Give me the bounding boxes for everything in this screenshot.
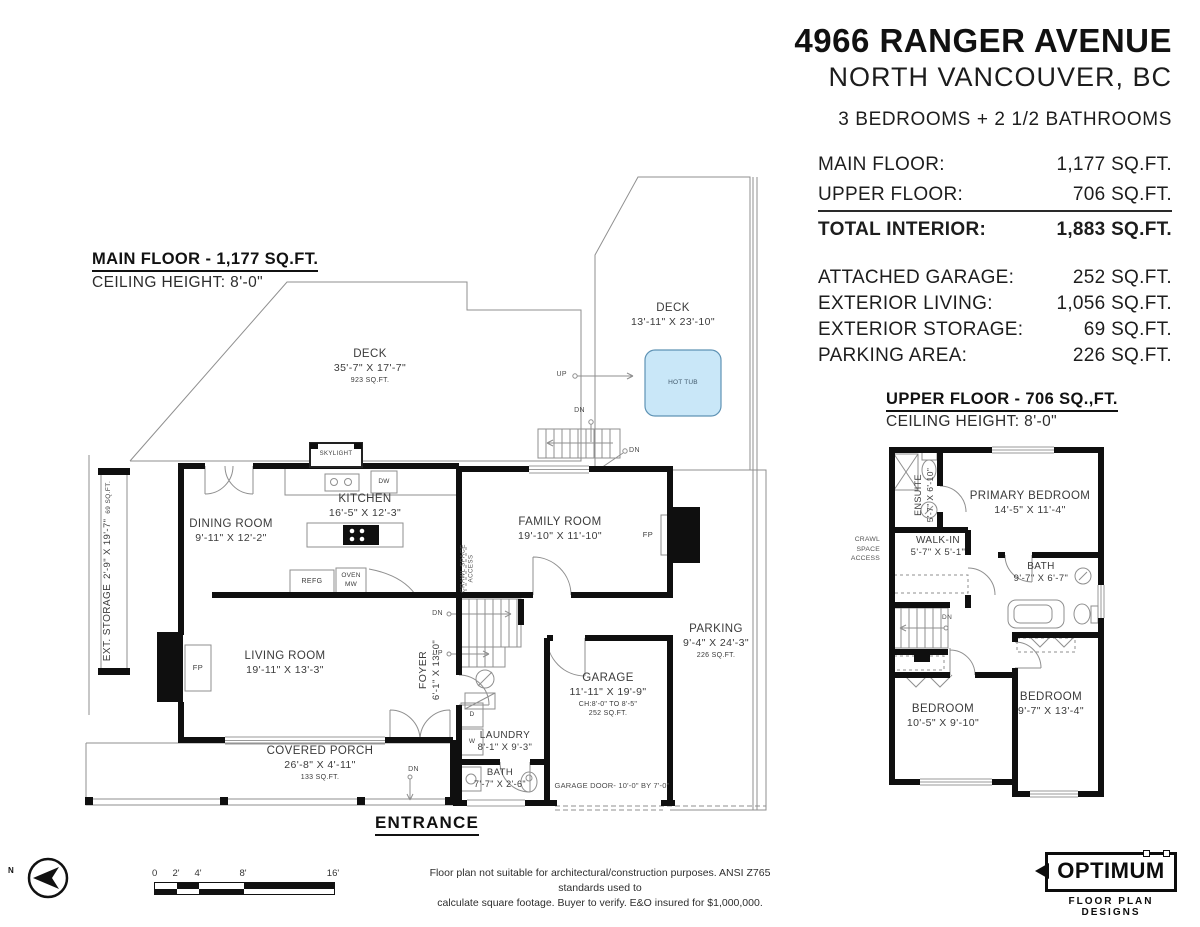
deck-dn-label-1: DN: [563, 406, 585, 415]
stat-exterior-storage: EXTERIOR STORAGE: 69 SQ.FT.: [818, 315, 1172, 341]
scale-tick-0: 0: [152, 868, 157, 879]
stat-value: 1,177 SQ.FT.: [1056, 154, 1172, 176]
stat-parking-area: PARKING AREA: 226 SQ.FT.: [818, 341, 1172, 367]
washer-label: W: [462, 738, 482, 746]
family-room-label: FAMILY ROOM 19'-10" X 11'-10": [490, 515, 630, 544]
logo-square-icon: [1163, 850, 1170, 857]
scale-bar: 0 2' 4' 8' 16': [152, 868, 337, 898]
fireplace-label-living: FP: [185, 663, 211, 673]
dishwasher-label: DW: [371, 478, 397, 486]
stat-attached-garage: ATTACHED GARAGE: 252 SQ.FT.: [818, 263, 1172, 289]
stat-value: 1,883 SQ.FT.: [1056, 219, 1172, 241]
porch-dn-label: DN: [395, 765, 419, 774]
dryer-label: D: [462, 711, 482, 719]
upper-bath-label: BATH 9'-7" X 6'-7": [996, 560, 1086, 585]
logo-arrow-icon: [1035, 863, 1049, 879]
microwave-label: MW: [336, 581, 366, 589]
fireplace-label-family: FP: [637, 530, 659, 540]
stat-label: MAIN FLOOR:: [818, 154, 945, 176]
scale-tick-4: 4': [194, 868, 201, 879]
page-title: 4966 RANGER AVENUE: [794, 22, 1172, 60]
scale-tick-2: 2': [172, 868, 179, 879]
stat-label: ATTACHED GARAGE:: [818, 267, 1014, 289]
fridge-label: REFG: [290, 577, 334, 586]
bath-label: BATH 7'-7" X 2'-6": [467, 767, 533, 791]
stat-value: 226 SQ.FT.: [1073, 345, 1172, 367]
ext-storage-label: EXT. STORAGE 2'-9" X 19'-7" 69 SQ.FT.: [96, 465, 132, 677]
stat-value: 252 SQ.FT.: [1073, 267, 1172, 289]
bedroom-right-label: BEDROOM 9'-7" X 13'-4": [1000, 690, 1102, 719]
garage-door-label: GARAGE DOOR- 10'-0" BY 7'-0": [553, 781, 671, 791]
stat-exterior-living: EXTERIOR LIVING: 1,056 SQ.FT.: [818, 289, 1172, 315]
crawl-space-access-label: CRAWL SPACE ACCESS: [460, 535, 469, 603]
stairs-up-label: UP: [419, 649, 443, 658]
page-subtitle: NORTH VANCOUVER, BC: [794, 62, 1172, 93]
kitchen-label: KITCHEN 16'-5" X 12'-3": [300, 492, 430, 521]
area-stats: MAIN FLOOR: 1,177 SQ.FT. UPPER FLOOR: 70…: [818, 150, 1172, 367]
walk-in-label: WALK-IN 5'-7" X 5'-1": [890, 534, 986, 559]
stat-label: UPPER FLOOR:: [818, 184, 963, 206]
stat-label: TOTAL INTERIOR:: [818, 219, 986, 241]
stat-label: EXTERIOR LIVING:: [818, 293, 993, 315]
north-label: N: [8, 866, 14, 875]
stat-label: EXTERIOR STORAGE:: [818, 319, 1023, 341]
scale-tick-8: 8': [239, 868, 246, 879]
stat-total-interior: TOTAL INTERIOR: 1,883 SQ.FT.: [818, 215, 1172, 241]
north-arrow-icon: [25, 855, 71, 901]
stat-value: 69 SQ.FT.: [1084, 319, 1172, 341]
bedroom-left-label: BEDROOM 10'-5" X 9'-10": [888, 702, 998, 731]
scale-bar-strip: [154, 882, 335, 895]
deck-main-label: DECK 35'-7" X 17'-7" 923 SQ.FT.: [300, 347, 440, 385]
garage-label: GARAGE 11'-11" X 19'-9" CH:8'-0" TO 8'-5…: [548, 671, 668, 718]
hot-tub-label: HOT TUB: [643, 379, 723, 387]
main-floor-drawing: [85, 155, 785, 855]
deck-dn-label-2: DN: [629, 446, 653, 455]
stat-upper-floor: UPPER FLOOR: 706 SQ.FT.: [818, 176, 1172, 212]
beds-baths-summary: 3 BEDROOMS + 2 1/2 BATHROOMS: [794, 109, 1172, 131]
living-room-label: LIVING ROOM 19'-11" X 13'-3": [215, 649, 355, 678]
stat-value: 706 SQ.FT.: [1073, 184, 1172, 206]
upper-floor-plan: UPPER FLOOR - 706 SQ.,FT. CEILING HEIGHT…: [880, 390, 1125, 820]
entrance-label: ENTRANCE: [375, 813, 479, 833]
stat-main-floor: MAIN FLOOR: 1,177 SQ.FT.: [818, 150, 1172, 176]
floor-plan-page: 4966 RANGER AVENUE NORTH VANCOUVER, BC 3…: [0, 0, 1200, 927]
dining-room-label: DINING ROOM 9'-11" X 12'-2": [171, 517, 291, 546]
oven-label: OVEN: [336, 572, 366, 580]
stat-value: 1,056 SQ.FT.: [1056, 293, 1172, 315]
scale-tick-16: 16': [327, 868, 339, 879]
deck-up-label: UP: [537, 370, 567, 379]
disclaimer: Floor plan not suitable for architectura…: [408, 866, 792, 912]
logo-tagline: FLOOR PLAN DESIGNS: [1045, 896, 1177, 918]
stat-label: PARKING AREA:: [818, 345, 967, 367]
company-logo: OPTIMUM FLOOR PLAN DESIGNS: [1045, 852, 1179, 918]
parking-label: PARKING 9'-4" X 24'-3" 226 SQ.FT.: [656, 622, 776, 660]
foyer-label: FOYER 6'-1" X 13'-0": [417, 622, 443, 718]
logo-square-icon: [1143, 850, 1150, 857]
logo-brand: OPTIMUM: [1048, 855, 1174, 887]
covered-porch-label: COVERED PORCH 26'-8" X 4'-11" 133 SQ.FT.: [250, 744, 390, 782]
upper-crawl-space-label: CRAWL SPACE ACCESS: [830, 535, 880, 564]
title-block: 4966 RANGER AVENUE NORTH VANCOUVER, BC 3…: [794, 22, 1172, 131]
primary-bedroom-label: PRIMARY BEDROOM 14'-5" X 11'-4": [960, 489, 1100, 518]
main-floor-plan: MAIN FLOOR - 1,177 SQ.FT. CEILING HEIGHT…: [85, 155, 785, 855]
deck-hot-tub-label: DECK 13'-11" X 23'-10": [608, 301, 738, 330]
ensuite-label: ENSUITE 5'-7" X 6'-10": [913, 443, 937, 547]
skylight-label: SKYLIGHT: [311, 451, 361, 459]
stairs-dn-label: DN: [419, 609, 443, 618]
upper-dn-label: DN: [942, 614, 968, 622]
